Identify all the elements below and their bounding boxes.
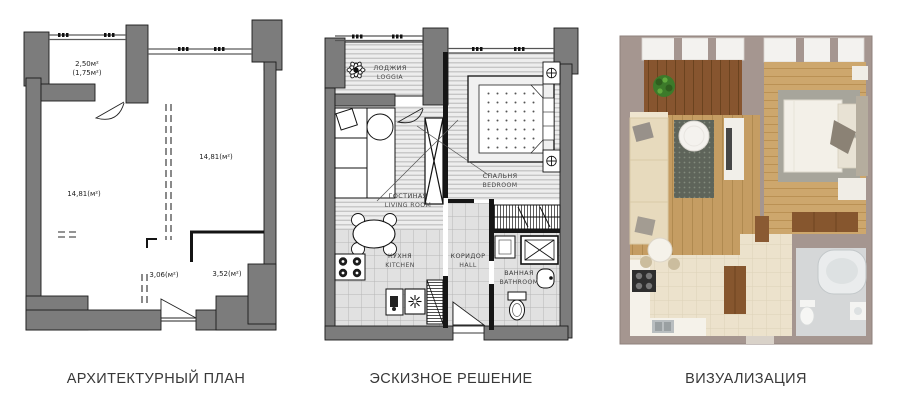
sketch-kitchen-label-en: KITCHEN — [385, 262, 415, 269]
caption-visualization: ВИЗУАЛИЗАЦИЯ — [612, 371, 880, 389]
arch-walls — [24, 20, 282, 330]
viz-stove — [632, 270, 656, 292]
bed-icon — [468, 76, 554, 162]
washbasin-icon — [537, 269, 554, 288]
visualization-render — [612, 20, 880, 350]
washing-machine-icon — [495, 236, 515, 258]
arch-room-left-area-label: 14,81(м²) — [67, 190, 101, 198]
stove-icon — [335, 254, 365, 280]
arch-room-right-area-label: 14,81(м²) — [199, 153, 233, 161]
shower-icon — [521, 236, 558, 264]
panel-sketch-solution: ЛОДЖИЯ LOGGIA СПАЛЬНЯ BEDROOM — [322, 8, 580, 353]
viz-toilet — [800, 300, 815, 307]
sketch-bedroom-label-en: BEDROOM — [482, 182, 517, 189]
viz-bedroom-closet — [792, 212, 858, 232]
closet-hangers-icon — [494, 205, 560, 229]
sketch-loggia-label-ru: ЛОДЖИЯ — [373, 64, 406, 72]
viz-tv — [726, 128, 732, 170]
arch-windows — [49, 35, 252, 54]
arch-partitions — [147, 232, 264, 262]
shoe-rack-icon — [427, 280, 443, 324]
viz-entrance — [746, 336, 774, 344]
sink-icon — [386, 289, 403, 315]
sketch-loggia-label-en: LOGGIA — [377, 74, 404, 81]
toilet-icon — [508, 292, 526, 320]
sketch-hall-label-en: HALL — [459, 262, 477, 269]
arch-doors — [96, 102, 196, 321]
sketch-bedroom-label-ru: СПАЛЬНЯ — [483, 172, 518, 180]
panel-architectural-plan: 2,50м² (1,75м²) 14,81(м²) 14,81(м²) 3,06… — [20, 8, 292, 346]
caption-architectural-plan: АРХИТЕКТУРНЫЙ ПЛАН — [20, 371, 292, 389]
sketch-living-label-ru: ГОСТИНАЯ — [389, 192, 428, 200]
caption-sketch-solution: ЭСКИЗНОЕ РЕШЕНИЕ — [322, 371, 580, 389]
wardrobe-icon — [425, 118, 443, 204]
sketch-bathroom-label-ru: ВАННАЯ — [504, 269, 534, 277]
panel-visualization — [612, 20, 880, 350]
viz-door — [755, 216, 769, 242]
arch-hall-area-label: 3,06(м²) — [149, 271, 178, 279]
burner-star-icon — [405, 289, 425, 314]
arch-loggia-area-label: 2,50м² — [75, 60, 99, 68]
viz-plant — [653, 75, 675, 97]
sketch-kitchen-label-ru: КУХНЯ — [388, 252, 412, 260]
arch-bathroom-area-label: 3,52(м²) — [212, 270, 241, 278]
sketch-hall-label-ru: КОРИДОР — [451, 252, 486, 260]
floorplan-triptych: 2,50м² (1,75м²) 14,81(м²) 14,81(м²) 3,06… — [0, 0, 900, 410]
sketch-plan-drawing: ЛОДЖИЯ LOGGIA СПАЛЬНЯ BEDROOM — [322, 8, 580, 353]
sketch-living-label-en: LIVING ROOM — [385, 202, 432, 209]
sofa-bed-icon — [335, 108, 395, 198]
architectural-plan-drawing: 2,50м² (1,75м²) 14,81(м²) 14,81(м²) 3,06… — [20, 8, 292, 346]
sketch-bathroom-label-en: BATHROOM — [499, 279, 538, 286]
arch-loggia-area-reduced-label: (1,75м²) — [72, 69, 101, 77]
